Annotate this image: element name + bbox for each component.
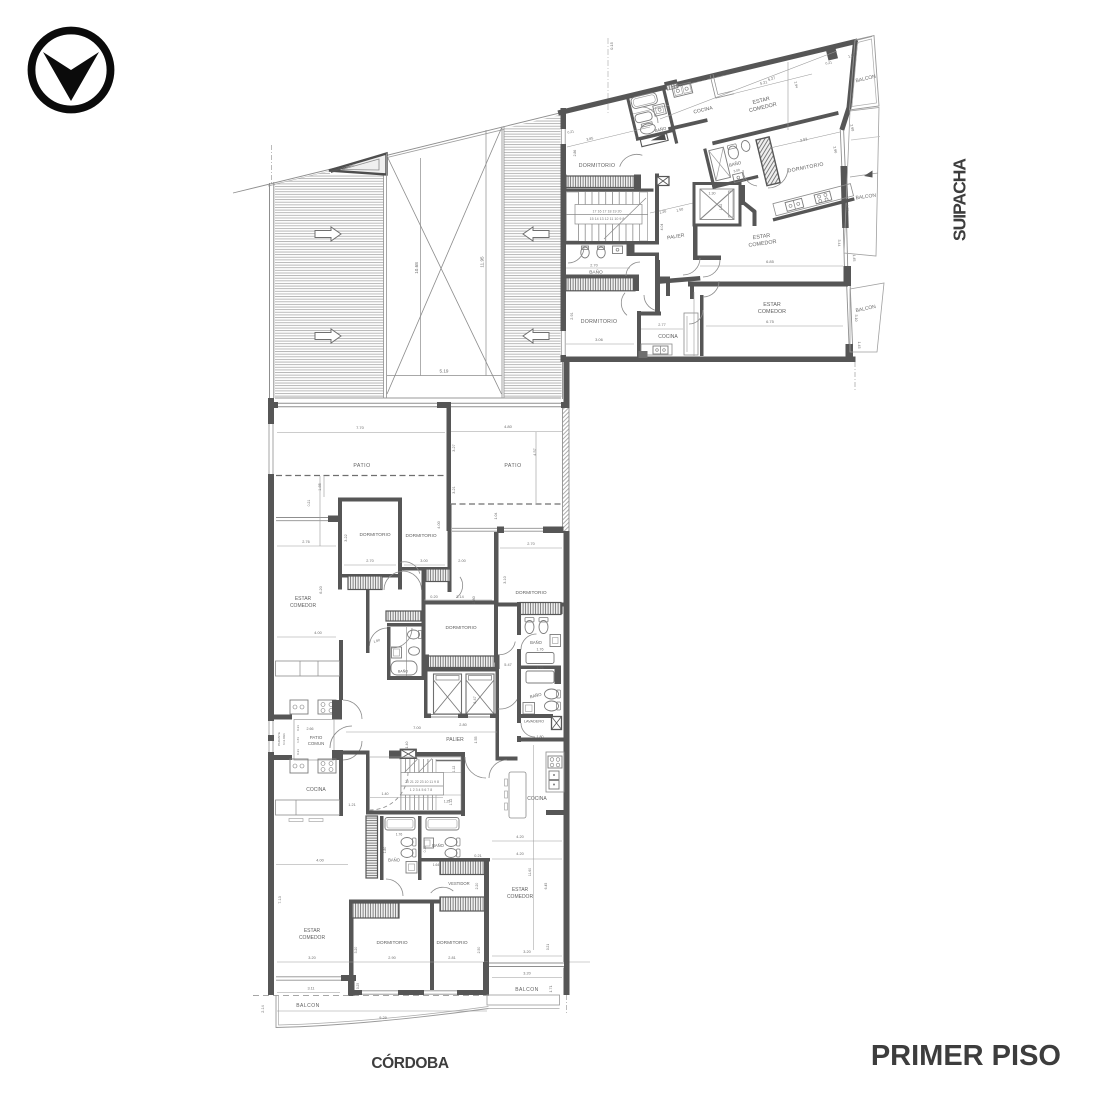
svg-text:LAVADERO: LAVADERO bbox=[524, 720, 544, 724]
svg-text:BAÑO: BAÑO bbox=[432, 843, 445, 848]
svg-text:3.20: 3.20 bbox=[523, 950, 530, 954]
svg-text:2.91: 2.91 bbox=[570, 312, 574, 319]
svg-text:PATIO: PATIO bbox=[504, 463, 521, 469]
svg-text:1.04: 1.04 bbox=[494, 513, 498, 520]
svg-text:2.70: 2.70 bbox=[366, 559, 373, 563]
svg-text:4.80: 4.80 bbox=[504, 424, 513, 429]
svg-text:1 2 3 4 5 6 7 8: 1 2 3 4 5 6 7 8 bbox=[410, 788, 432, 792]
svg-text:PALIER: PALIER bbox=[446, 737, 464, 743]
svg-text:3.20: 3.20 bbox=[523, 972, 530, 976]
svg-text:COCINA: COCINA bbox=[306, 787, 326, 793]
svg-text:DORMITORIO: DORMITORIO bbox=[436, 940, 467, 946]
svg-text:2.14: 2.14 bbox=[261, 1005, 265, 1012]
svg-text:0.21: 0.21 bbox=[307, 500, 311, 507]
svg-text:6.85: 6.85 bbox=[766, 259, 775, 264]
svg-text:2.70: 2.70 bbox=[590, 264, 597, 268]
svg-text:0.21: 0.21 bbox=[546, 944, 550, 950]
svg-text:DORMITORIO: DORMITORIO bbox=[581, 319, 618, 325]
svg-text:ESTAR: ESTAR bbox=[512, 887, 529, 893]
svg-text:1.76: 1.76 bbox=[537, 648, 544, 652]
svg-text:1.76: 1.76 bbox=[537, 666, 544, 670]
svg-text:2.00: 2.00 bbox=[458, 559, 465, 563]
svg-text:3.20: 3.20 bbox=[308, 956, 315, 960]
svg-text:COCINA: COCINA bbox=[658, 334, 678, 340]
svg-text:2.81: 2.81 bbox=[448, 956, 455, 960]
svg-text:3.22: 3.22 bbox=[344, 534, 348, 541]
svg-text:2.76: 2.76 bbox=[302, 540, 309, 544]
svg-text:BAÑO: BAÑO bbox=[398, 669, 408, 674]
svg-text:11.60: 11.60 bbox=[528, 868, 532, 876]
svg-text:COMUN: COMUN bbox=[308, 741, 325, 746]
svg-text:3.10: 3.10 bbox=[503, 576, 507, 583]
svg-text:1.12: 1.12 bbox=[452, 766, 456, 773]
svg-text:BAÑO: BAÑO bbox=[388, 858, 401, 863]
svg-text:PATIO: PATIO bbox=[310, 735, 323, 740]
svg-text:DORMITORIO: DORMITORIO bbox=[579, 163, 616, 169]
svg-text:1.30: 1.30 bbox=[709, 192, 716, 196]
svg-text:10.68: 10.68 bbox=[414, 262, 419, 274]
svg-text:h=2.00m: h=2.00m bbox=[282, 733, 286, 745]
svg-text:4.00: 4.00 bbox=[437, 521, 441, 528]
svg-text:DORMITORIO: DORMITORIO bbox=[376, 940, 407, 946]
svg-text:COMEDOR: COMEDOR bbox=[758, 309, 786, 315]
svg-text:1.55: 1.55 bbox=[474, 737, 478, 744]
svg-text:15 14 13 12 11 10 9 8: 15 14 13 12 11 10 9 8 bbox=[590, 217, 625, 221]
svg-text:3.44: 3.44 bbox=[837, 240, 841, 247]
svg-text:1.71: 1.71 bbox=[549, 986, 553, 993]
svg-text:7.70: 7.70 bbox=[356, 425, 365, 430]
svg-text:1.21: 1.21 bbox=[348, 803, 355, 807]
svg-text:5.19: 5.19 bbox=[440, 369, 449, 374]
svg-text:17 16 17 18 19 20: 17 16 17 18 19 20 bbox=[593, 210, 622, 214]
svg-text:2.20: 2.20 bbox=[475, 883, 479, 890]
svg-text:1.76: 1.76 bbox=[396, 833, 403, 837]
svg-text:COCINA: COCINA bbox=[527, 796, 547, 802]
svg-text:ESTAR: ESTAR bbox=[295, 596, 312, 602]
svg-text:VESTIDOR: VESTIDOR bbox=[448, 881, 469, 886]
svg-text:COMEDOR: COMEDOR bbox=[290, 603, 317, 609]
svg-text:COMEDOR: COMEDOR bbox=[507, 894, 534, 900]
svg-text:BALCON: BALCON bbox=[296, 1003, 320, 1009]
svg-text:CÓRDOBA: CÓRDOBA bbox=[371, 1054, 448, 1072]
svg-text:4.20: 4.20 bbox=[516, 835, 523, 839]
svg-text:COMEDOR: COMEDOR bbox=[299, 935, 326, 941]
svg-text:4.95: 4.95 bbox=[845, 204, 849, 211]
svg-text:3.10: 3.10 bbox=[854, 315, 858, 322]
svg-text:0.15: 0.15 bbox=[423, 846, 427, 853]
svg-text:0.25: 0.25 bbox=[356, 983, 360, 989]
svg-text:2.50: 2.50 bbox=[477, 947, 481, 954]
svg-text:PARANTE: PARANTE bbox=[277, 732, 281, 746]
svg-text:BAÑO: BAÑO bbox=[530, 640, 543, 645]
svg-text:11.95: 11.95 bbox=[480, 256, 485, 268]
svg-text:SUIPACHA: SUIPACHA bbox=[950, 158, 970, 241]
svg-text:ESTAR: ESTAR bbox=[763, 302, 781, 308]
svg-text:7.00: 7.00 bbox=[413, 725, 422, 730]
svg-text:2.70: 2.70 bbox=[527, 542, 534, 546]
svg-text:2.80: 2.80 bbox=[472, 596, 476, 603]
svg-text:0.21: 0.21 bbox=[296, 725, 300, 731]
svg-text:7.13: 7.13 bbox=[278, 896, 282, 903]
svg-text:DORMITORIO: DORMITORIO bbox=[445, 625, 476, 631]
svg-text:0.20: 0.20 bbox=[430, 595, 437, 599]
svg-text:DORMITORIO: DORMITORIO bbox=[359, 532, 390, 538]
svg-text:1.61: 1.61 bbox=[296, 737, 300, 743]
svg-text:1.45: 1.45 bbox=[857, 342, 861, 349]
svg-text:5.47: 5.47 bbox=[504, 663, 511, 667]
svg-text:1.45: 1.45 bbox=[852, 254, 856, 261]
svg-text:3.47: 3.47 bbox=[473, 696, 477, 703]
svg-text:2.77: 2.77 bbox=[658, 323, 665, 327]
svg-text:ESTAR: ESTAR bbox=[304, 928, 321, 934]
svg-text:0.21: 0.21 bbox=[474, 854, 481, 858]
svg-text:DORMITORIO: DORMITORIO bbox=[405, 533, 436, 539]
svg-text:2.86: 2.86 bbox=[573, 150, 577, 157]
svg-text:2.66: 2.66 bbox=[307, 727, 314, 731]
svg-text:9.29: 9.29 bbox=[379, 1016, 386, 1020]
svg-text:3.20: 3.20 bbox=[354, 947, 358, 954]
svg-text:4.04: 4.04 bbox=[660, 224, 664, 231]
svg-text:1.40: 1.40 bbox=[382, 792, 389, 796]
svg-text:3.06: 3.06 bbox=[595, 337, 604, 342]
svg-text:PRIMER PISO: PRIMER PISO bbox=[871, 1040, 1061, 1072]
svg-text:1.25: 1.25 bbox=[444, 800, 451, 804]
svg-text:0.21: 0.21 bbox=[296, 749, 300, 755]
svg-text:BAÑO: BAÑO bbox=[589, 269, 603, 276]
svg-text:4.57: 4.57 bbox=[533, 448, 537, 455]
svg-text:1.40: 1.40 bbox=[405, 742, 409, 749]
svg-text:6.20: 6.20 bbox=[319, 586, 323, 593]
svg-text:4.20: 4.20 bbox=[516, 852, 523, 856]
svg-text:1.64: 1.64 bbox=[433, 863, 440, 867]
svg-text:BALCON: BALCON bbox=[515, 987, 539, 993]
svg-text:2.90: 2.90 bbox=[388, 956, 395, 960]
svg-text:4.00: 4.00 bbox=[316, 859, 323, 863]
svg-text:0.15: 0.15 bbox=[609, 41, 614, 50]
svg-text:PATIO: PATIO bbox=[353, 463, 370, 469]
svg-text:6.45: 6.45 bbox=[544, 883, 548, 890]
svg-text:1.80: 1.80 bbox=[383, 847, 387, 854]
svg-text:3.00: 3.00 bbox=[420, 559, 427, 563]
svg-text:3.21: 3.21 bbox=[452, 486, 456, 493]
svg-text:DORMITORIO: DORMITORIO bbox=[515, 590, 546, 596]
svg-text:6.75: 6.75 bbox=[766, 319, 775, 324]
svg-text:2.80: 2.80 bbox=[459, 723, 466, 727]
svg-text:4.00: 4.00 bbox=[314, 631, 321, 635]
svg-text:20 21 22 23 10 11 9 8: 20 21 22 23 10 11 9 8 bbox=[405, 780, 439, 784]
svg-text:1.52: 1.52 bbox=[719, 204, 723, 211]
svg-text:3.11: 3.11 bbox=[307, 987, 314, 991]
svg-text:3.27: 3.27 bbox=[452, 444, 456, 451]
